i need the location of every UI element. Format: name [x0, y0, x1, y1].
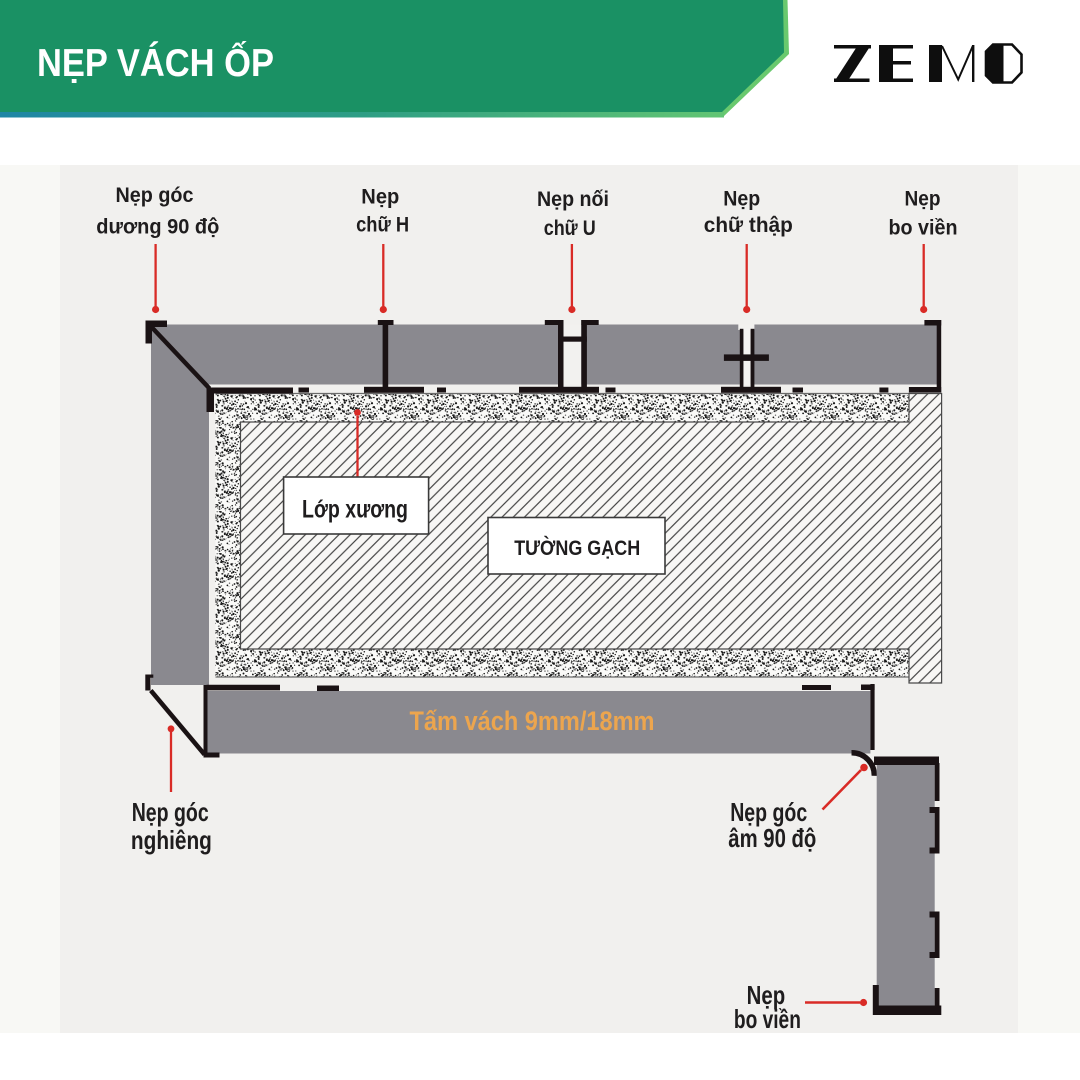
svg-text:Lớp xương: Lớp xương: [302, 496, 408, 524]
svg-text:Nẹp: Nẹp: [723, 188, 760, 211]
svg-text:dương 90 độ: dương 90 độ: [96, 216, 219, 239]
svg-text:Nẹp góc: Nẹp góc: [132, 797, 209, 827]
svg-text:nghiêng: nghiêng: [131, 825, 212, 855]
svg-text:Nẹp: Nẹp: [905, 188, 941, 211]
svg-text:âm 90 độ: âm 90 độ: [728, 823, 816, 853]
svg-text:chữ H: chữ H: [356, 214, 409, 237]
svg-text:chữ thập: chữ thập: [704, 214, 793, 237]
svg-text:NẸP VÁCH ỐP: NẸP VÁCH ỐP: [37, 40, 274, 85]
svg-text:Nẹp: Nẹp: [361, 186, 399, 209]
svg-text:chữ U: chữ U: [544, 217, 596, 240]
svg-text:Tấm vách 9mm/18mm: Tấm vách 9mm/18mm: [410, 706, 655, 736]
svg-text:bo viền: bo viền: [889, 217, 958, 240]
svg-text:TƯỜNG GẠCH: TƯỜNG GẠCH: [514, 535, 640, 560]
svg-text:bo viền: bo viền: [734, 1004, 801, 1034]
svg-text:Nẹp nối: Nẹp nối: [537, 188, 609, 211]
svg-text:Nẹp góc: Nẹp góc: [116, 184, 194, 207]
